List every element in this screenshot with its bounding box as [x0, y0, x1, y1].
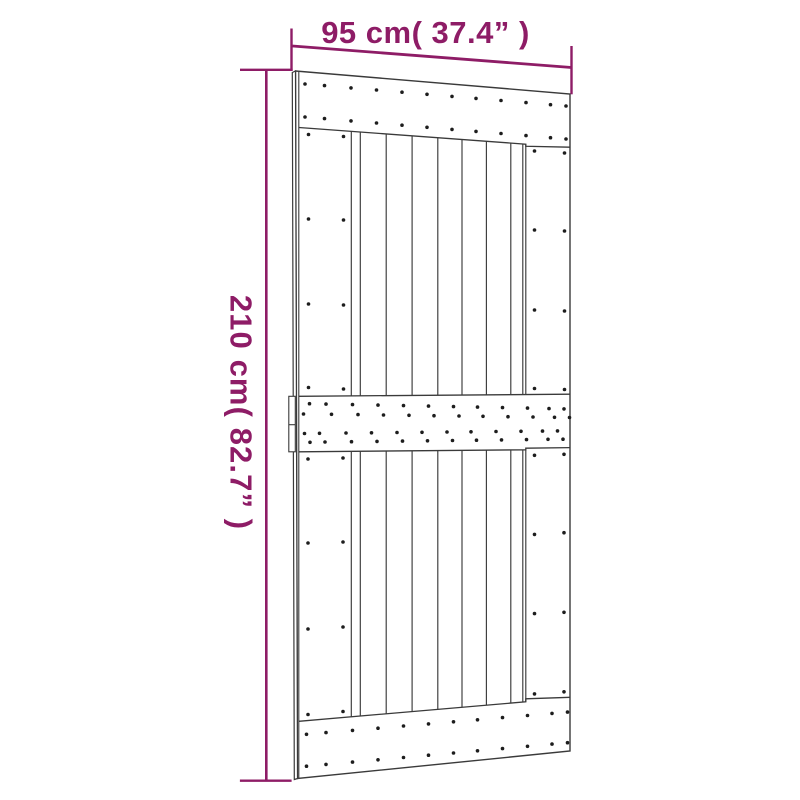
svg-text:210 cm( 82.7” ): 210 cm( 82.7” )	[224, 295, 259, 530]
svg-text:95 cm( 37.4” ): 95 cm( 37.4” )	[321, 15, 530, 50]
